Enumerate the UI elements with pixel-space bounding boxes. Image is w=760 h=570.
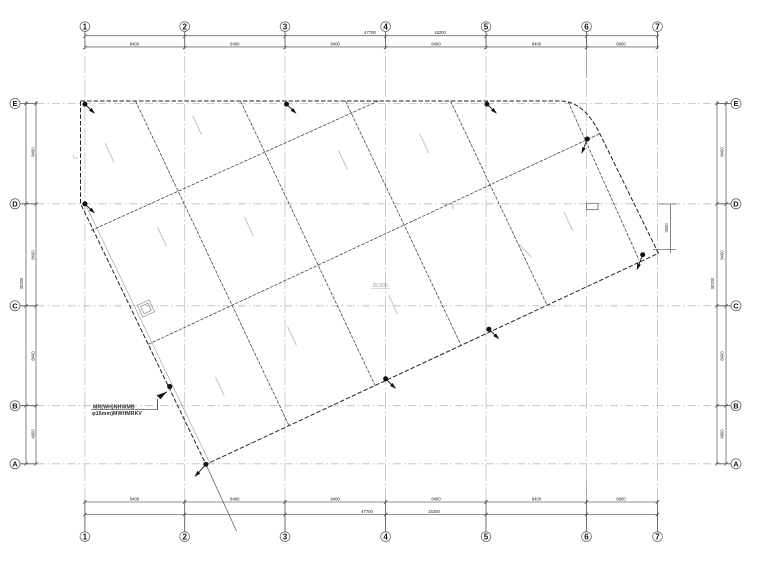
svg-text:2600: 2600 [664, 223, 669, 233]
svg-text:3: 3 [283, 532, 288, 541]
svg-text:5: 5 [484, 532, 489, 541]
svg-text:A: A [733, 460, 739, 469]
svg-text:8400: 8400 [431, 497, 441, 502]
svg-text:E: E [12, 99, 17, 108]
svg-text:7: 7 [655, 532, 660, 541]
svg-text:C: C [733, 302, 739, 311]
svg-text:8400: 8400 [31, 250, 36, 260]
svg-text:8400: 8400 [431, 42, 441, 47]
svg-text:15200: 15200 [428, 509, 440, 514]
svg-text:B: B [12, 401, 18, 410]
svg-text:8400: 8400 [230, 497, 240, 502]
svg-text:3: 3 [283, 22, 288, 31]
svg-text:8400: 8400 [720, 250, 725, 260]
svg-text:6800: 6800 [616, 42, 626, 47]
svg-text:8400: 8400 [230, 42, 240, 47]
svg-text:8400: 8400 [130, 497, 140, 502]
svg-text:φ16mm)MWHMRKV: φ16mm)MWHMRKV [92, 411, 142, 417]
svg-text:15200: 15200 [434, 30, 446, 35]
svg-text:6: 6 [584, 532, 589, 541]
svg-text:8400: 8400 [31, 147, 36, 157]
svg-text:8400: 8400 [532, 497, 542, 502]
svg-text:8400: 8400 [532, 42, 542, 47]
svg-text:8400: 8400 [130, 42, 140, 47]
svg-text:5: 5 [484, 22, 489, 31]
svg-text:E: E [733, 99, 738, 108]
svg-text:4800: 4800 [31, 429, 36, 439]
svg-text:1: 1 [83, 22, 88, 31]
svg-text:2: 2 [182, 22, 187, 31]
svg-text:A: A [12, 460, 18, 469]
svg-text:30200: 30200 [19, 277, 24, 289]
svg-text:6: 6 [584, 22, 589, 31]
svg-text:1: 1 [83, 532, 88, 541]
svg-text:4: 4 [383, 22, 388, 31]
svg-text:47700: 47700 [364, 30, 376, 35]
svg-text:6800: 6800 [616, 497, 626, 502]
svg-text:B: B [733, 401, 739, 410]
svg-text:4800: 4800 [720, 429, 725, 439]
svg-text:8400: 8400 [720, 147, 725, 157]
svg-text:C: C [12, 302, 18, 311]
svg-text:47700: 47700 [361, 509, 373, 514]
svg-text:8400: 8400 [720, 351, 725, 361]
svg-text:D: D [733, 200, 739, 209]
svg-text:4: 4 [383, 532, 388, 541]
svg-text:2: 2 [182, 532, 187, 541]
svg-text:D: D [12, 200, 18, 209]
svg-text:8400: 8400 [31, 351, 36, 361]
svg-text:7: 7 [655, 22, 660, 31]
svg-text:35.500: 35.500 [372, 283, 388, 289]
svg-text:30200: 30200 [710, 277, 715, 289]
svg-text:8400: 8400 [331, 42, 341, 47]
svg-text:8400: 8400 [331, 497, 341, 502]
